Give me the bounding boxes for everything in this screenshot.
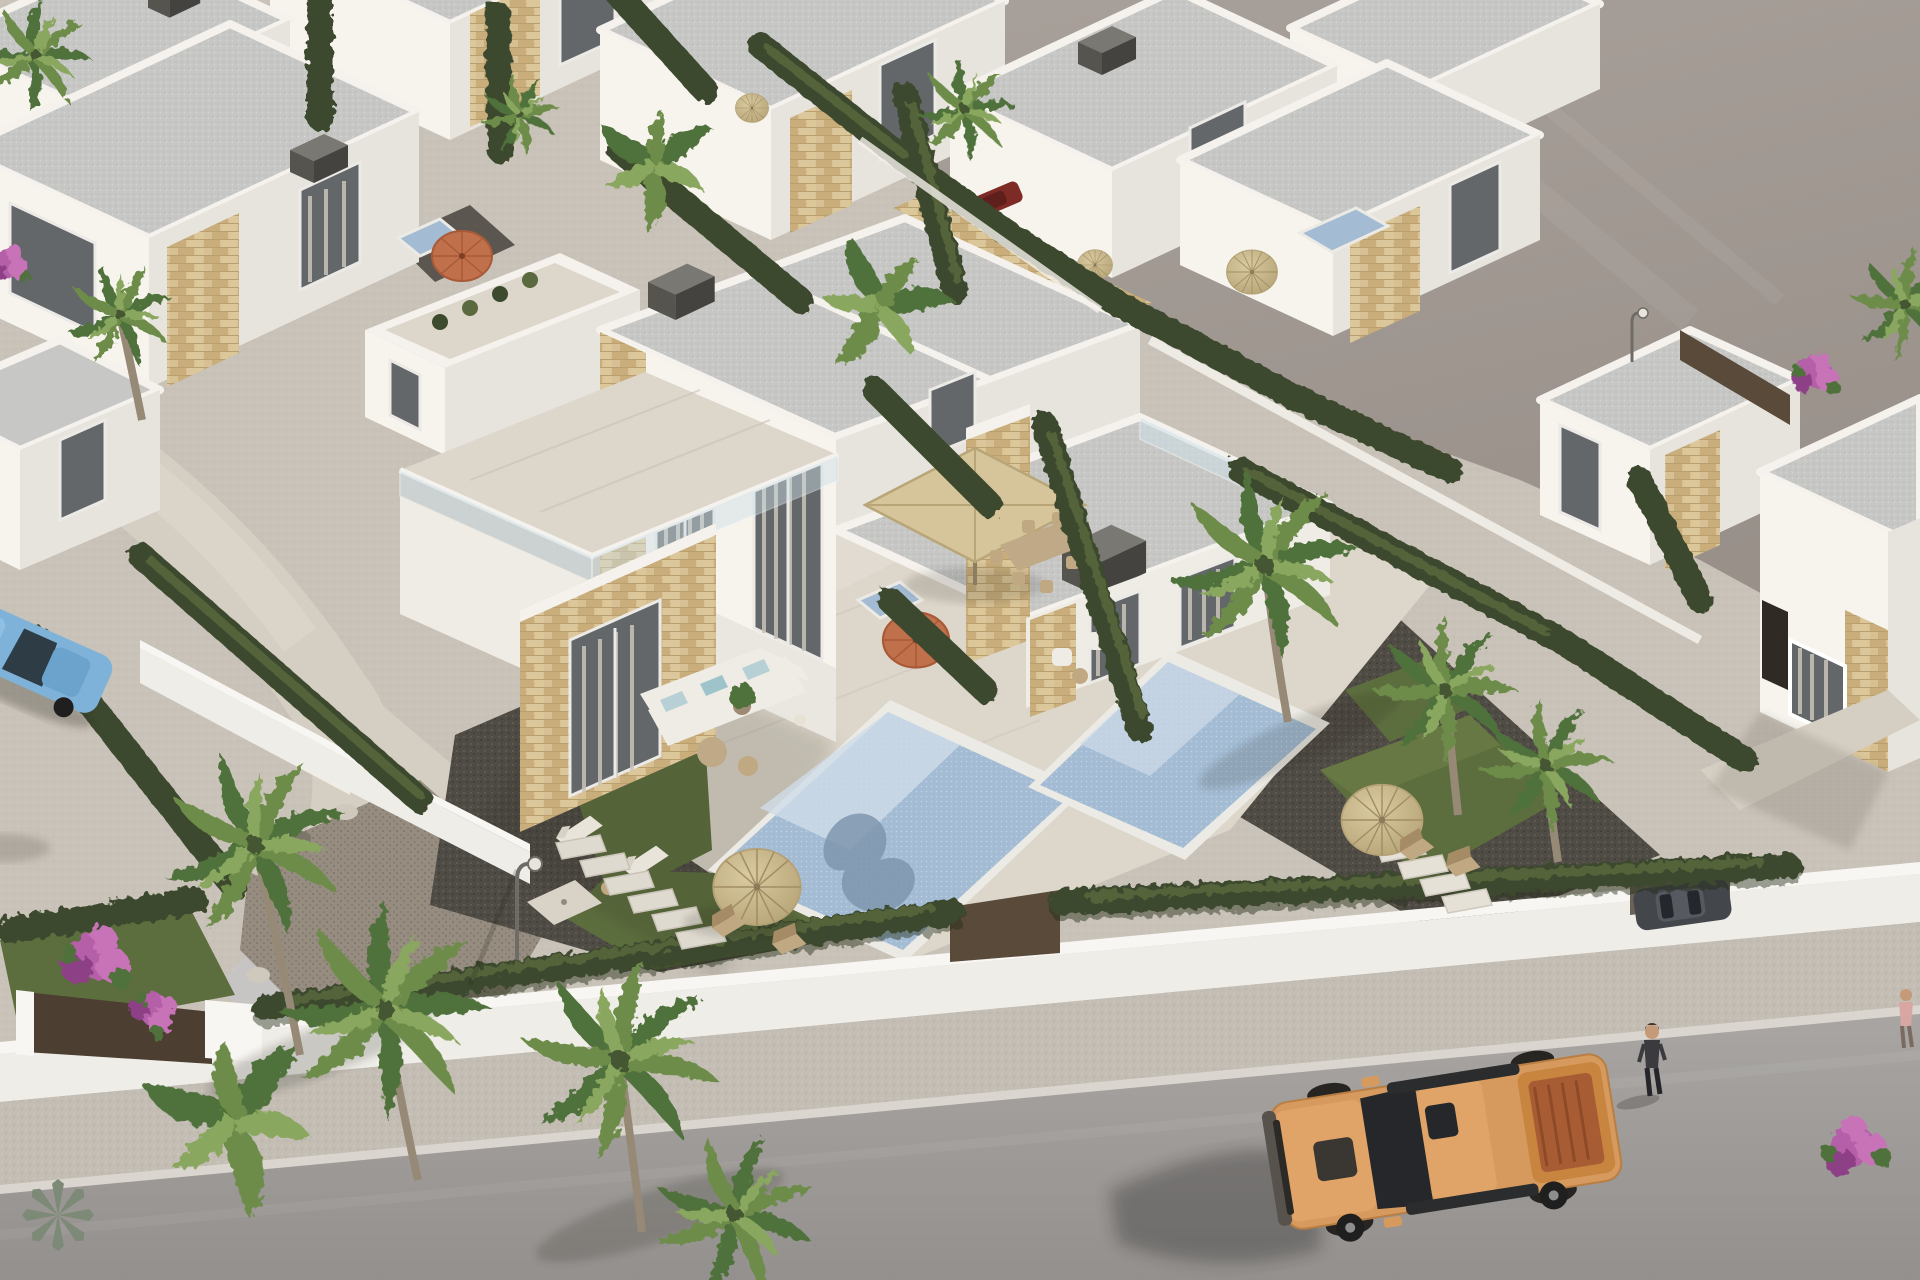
- scene-root: [0, 0, 1920, 1280]
- gate-post: [16, 990, 34, 1056]
- hood-scoop: [1312, 1136, 1358, 1182]
- sunroof: [1424, 1102, 1459, 1140]
- coffee-table: [738, 756, 758, 776]
- orange-parasol: [432, 231, 492, 281]
- straw-parasol: [735, 94, 768, 123]
- doorway: [1762, 600, 1788, 690]
- coffee-table: [697, 737, 727, 767]
- shower-drain: [561, 899, 567, 905]
- agave-plant: [22, 1179, 94, 1251]
- straw-parasol: [1227, 250, 1278, 294]
- render-canvas: [0, 0, 1920, 1280]
- lantern: [794, 714, 806, 726]
